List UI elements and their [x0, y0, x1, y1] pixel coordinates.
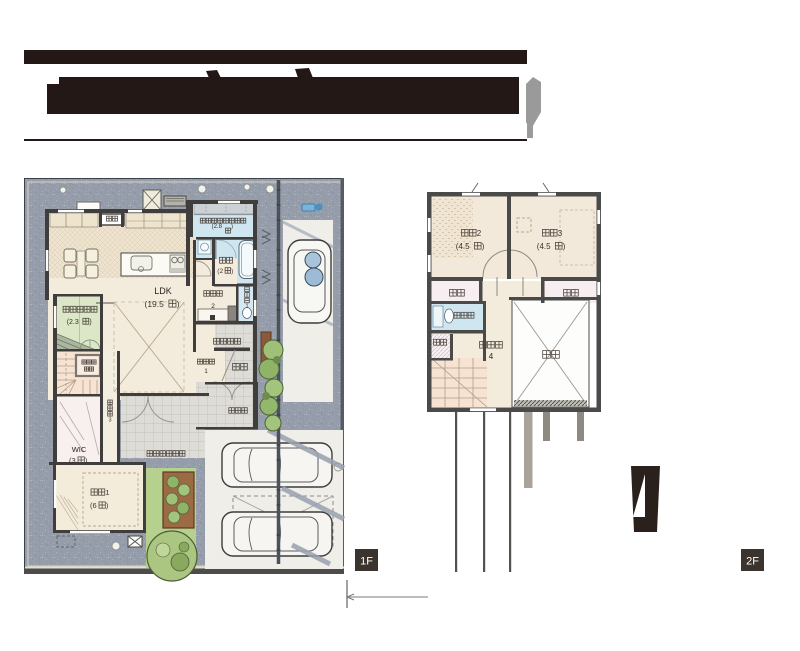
svg-text:1F: 1F — [360, 556, 373, 568]
svg-text:LDK: LDK — [154, 286, 172, 296]
svg-text:): ) — [89, 319, 91, 326]
svg-text:(6: (6 — [90, 501, 97, 510]
svg-text:): ) — [231, 224, 233, 230]
svg-text:3: 3 — [558, 229, 563, 238]
svg-text:2: 2 — [477, 229, 482, 238]
svg-text:): ) — [563, 242, 566, 251]
svg-text:2F: 2F — [746, 556, 759, 568]
svg-text:(3: (3 — [69, 456, 76, 465]
svg-text:1: 1 — [245, 304, 248, 310]
svg-text:(4.5: (4.5 — [537, 242, 551, 251]
svg-text:(2.3: (2.3 — [67, 319, 79, 326]
svg-text:): ) — [177, 299, 180, 309]
svg-text:3: 3 — [108, 418, 111, 424]
svg-text:): ) — [482, 242, 485, 251]
svg-text:(2.8: (2.8 — [212, 224, 223, 230]
svg-text:(4.5: (4.5 — [456, 242, 470, 251]
svg-text:4: 4 — [489, 352, 494, 361]
svg-text:(2: (2 — [217, 268, 223, 275]
svg-text:): ) — [231, 268, 233, 275]
svg-text:WIC: WIC — [72, 445, 87, 454]
svg-text:2: 2 — [211, 303, 215, 310]
svg-text:1: 1 — [105, 488, 109, 497]
svg-text:(19.5: (19.5 — [145, 299, 165, 309]
